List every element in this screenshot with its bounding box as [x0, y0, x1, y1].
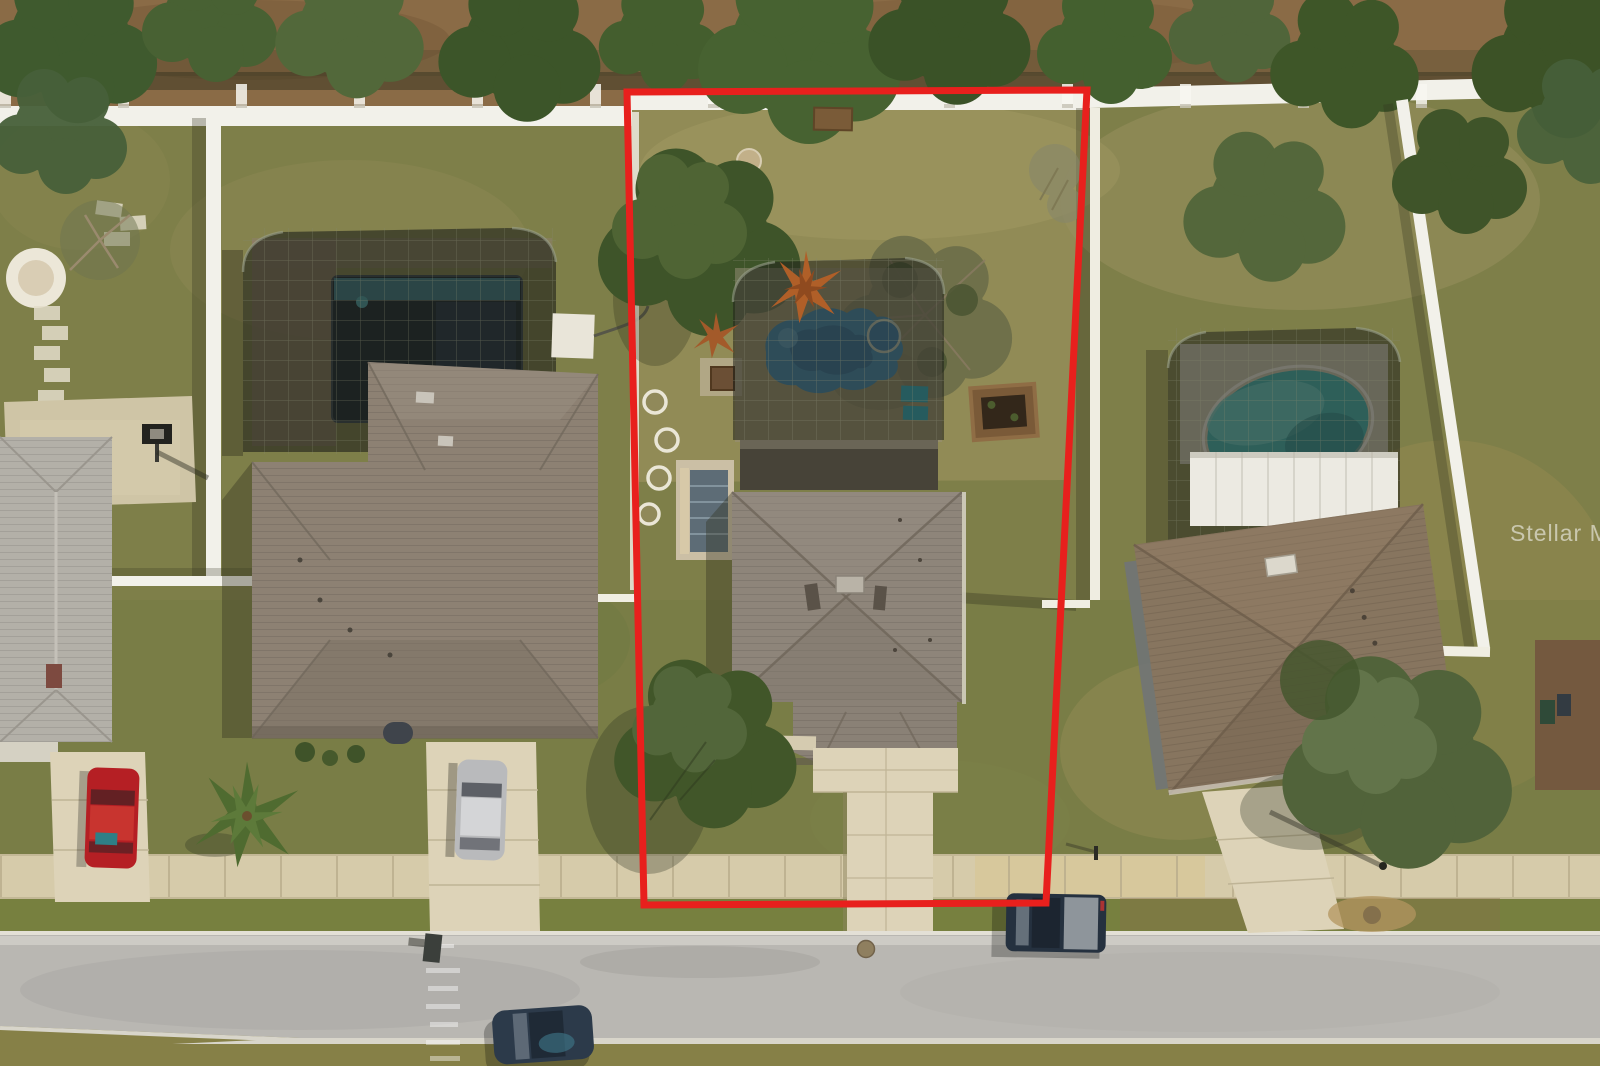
aerial-photo-canvas: Stellar MLS — [0, 0, 1600, 1066]
skylight — [416, 392, 435, 404]
stellar-mls-watermark: Stellar MLS — [1510, 520, 1600, 546]
skylight — [438, 436, 454, 447]
truck-bed-cover — [1064, 897, 1099, 950]
entry-arch — [383, 722, 413, 744]
chimney — [46, 664, 62, 688]
parked-dark-blue-car — [482, 1004, 595, 1066]
left-lot-side-fence — [206, 118, 221, 586]
backyard-patio-box — [814, 108, 852, 131]
subject-east-fence — [1090, 108, 1100, 600]
aerial-photo: Stellar MLS — [0, 0, 1600, 1066]
subject-pool-enclosure — [733, 258, 944, 442]
bare-tree-left — [60, 200, 140, 280]
raised-garden-bed — [970, 384, 1037, 440]
green-trash-bin — [1540, 700, 1555, 724]
silver-car — [445, 759, 507, 861]
roof-vent — [873, 586, 887, 611]
far-left-house — [0, 437, 112, 762]
manhole-cover — [858, 941, 875, 958]
dark-trash-bin — [1557, 694, 1571, 716]
east-gate — [1042, 600, 1090, 608]
lanai-roof — [740, 440, 938, 490]
skylight — [836, 576, 864, 593]
red-car — [76, 767, 139, 869]
round-patio — [6, 248, 66, 308]
skylight — [1265, 554, 1297, 576]
paver-circle — [1363, 906, 1381, 924]
teal-cargo-item — [95, 832, 117, 845]
west-gate — [598, 594, 640, 602]
spa-box — [551, 313, 595, 358]
sidewalk — [0, 854, 1600, 899]
